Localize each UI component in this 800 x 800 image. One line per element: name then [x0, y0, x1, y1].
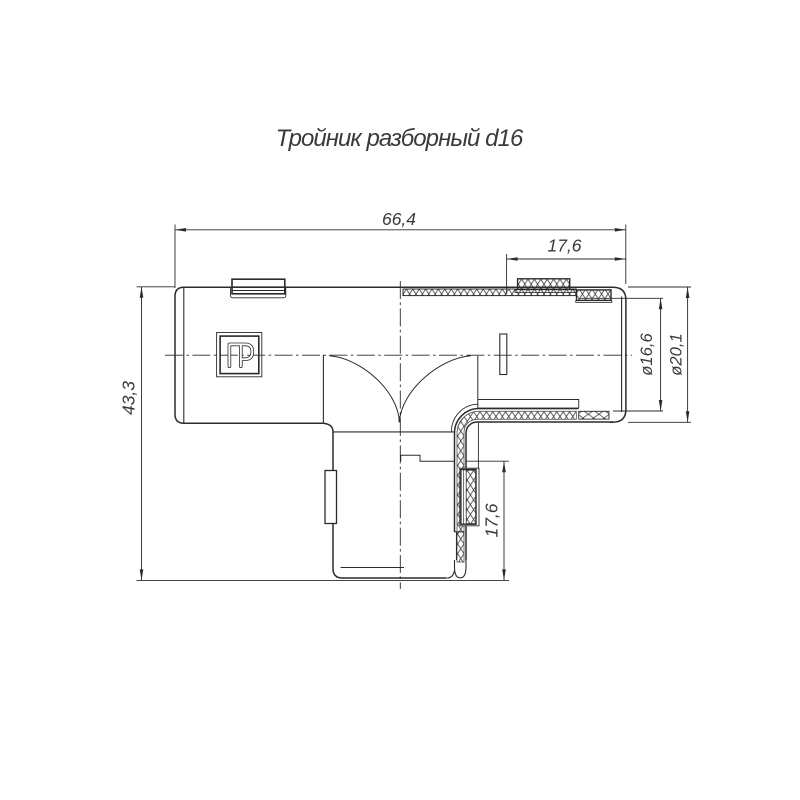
svg-text:43,3: 43,3 — [119, 381, 139, 415]
svg-text:ø20,1: ø20,1 — [667, 333, 686, 375]
svg-text:17,6: 17,6 — [482, 503, 502, 537]
svg-text:ø16,6: ø16,6 — [637, 333, 656, 376]
svg-text:Тройник разборный d16: Тройник разборный d16 — [276, 125, 524, 152]
svg-text:17,6: 17,6 — [547, 236, 581, 256]
svg-text:66,4: 66,4 — [382, 209, 416, 229]
